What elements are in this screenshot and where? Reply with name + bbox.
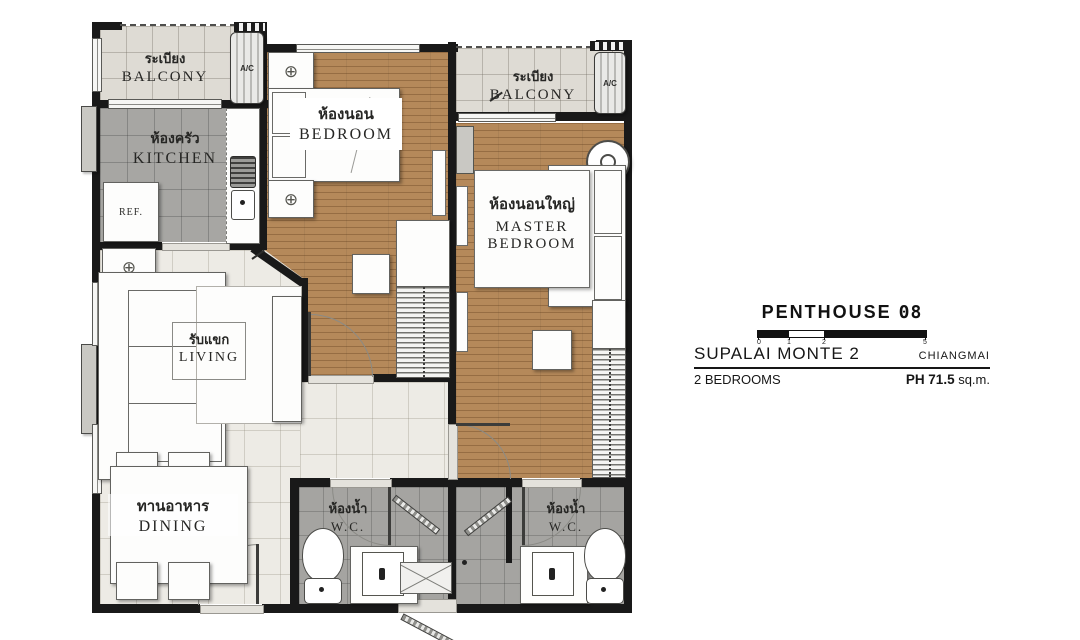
wc-left-faucet bbox=[379, 568, 385, 580]
wc-left-toilet-button bbox=[319, 587, 324, 592]
entrance-door-leaf bbox=[400, 613, 454, 640]
project-city: CHIANGMAI bbox=[919, 350, 990, 362]
bedrooms-count: 2 BEDROOMS bbox=[694, 372, 781, 387]
ceiling-lamp-icon: ⊕ bbox=[284, 63, 298, 80]
wall-south-1 bbox=[92, 604, 200, 613]
pilaster-2 bbox=[81, 344, 97, 434]
ac-unit-right: A/C bbox=[594, 52, 626, 114]
wc-right-toilet-button bbox=[601, 587, 606, 592]
wc-right-toilet-bowl bbox=[584, 528, 626, 582]
refrigerator-label: REF. bbox=[119, 207, 143, 218]
bedroom-wardrobe bbox=[396, 286, 450, 378]
master-stool bbox=[532, 330, 572, 370]
wc-right-faucet bbox=[549, 568, 555, 580]
wall-balcony2-west bbox=[448, 42, 456, 118]
scale-tick-1: 1 bbox=[787, 339, 791, 346]
wc-right-door-leaf bbox=[522, 487, 525, 545]
unit-area-value: 71.5 bbox=[928, 372, 954, 387]
bedroom-tv-panel bbox=[432, 150, 446, 216]
corridor-floor bbox=[300, 382, 448, 478]
pilaster-1 bbox=[81, 106, 97, 172]
scale-bar: 0 1 2 5 bbox=[757, 330, 927, 338]
wall-balcony-left-corner bbox=[92, 22, 122, 30]
wall-south-2 bbox=[262, 604, 398, 613]
balcony-right-vent bbox=[590, 41, 624, 51]
master-bed-canopy bbox=[474, 170, 590, 288]
wc-left-door-leaf bbox=[388, 487, 391, 545]
floor-plan-page: A/C A/C REF. ⊕ ⊕ ⊕ bbox=[0, 0, 1080, 640]
kitchen-balcony-window bbox=[108, 99, 222, 109]
balcony-west-window bbox=[92, 38, 102, 92]
service-shaft bbox=[400, 562, 452, 594]
master-builtin-cabinet bbox=[456, 126, 474, 174]
dining-chair-4 bbox=[168, 562, 210, 600]
scale-tick-5: 5 bbox=[923, 339, 927, 346]
kitchen-sink bbox=[231, 190, 255, 220]
master-door-leaf bbox=[456, 423, 510, 426]
kitchen-drainboard bbox=[230, 156, 256, 188]
bedroom-desk bbox=[396, 220, 450, 288]
scale-bar-segment-2 bbox=[824, 331, 926, 337]
wall-dining-wc bbox=[290, 478, 299, 612]
wall-corridor-wc-3 bbox=[580, 478, 632, 487]
living-tv-console bbox=[272, 296, 302, 422]
refrigerator: REF. bbox=[103, 182, 159, 242]
scale-tick-2: 2 bbox=[822, 339, 826, 346]
balcony-left-railing bbox=[120, 24, 236, 26]
scale-tick-0: 0 bbox=[757, 339, 761, 346]
master-tv-panel-1 bbox=[456, 186, 468, 246]
info-panel: PENTHOUSE 08 0 1 2 5 SUPALAI MONTE 2 CHI… bbox=[694, 302, 990, 387]
dining-chair-3 bbox=[116, 562, 158, 600]
unit-area-label: PH bbox=[906, 372, 925, 387]
ac-unit-right-label: A/C bbox=[603, 79, 617, 88]
master-wardrobe bbox=[592, 348, 626, 478]
dining-door-leaf bbox=[256, 544, 259, 604]
wc-right-shower-knob bbox=[462, 560, 467, 565]
master-pillow-1 bbox=[594, 170, 622, 234]
unit-area: PH 71.5 sq.m. bbox=[906, 372, 990, 387]
project-name: SUPALAI MONTE 2 bbox=[694, 344, 860, 364]
penthouse-title: PENTHOUSE 08 bbox=[694, 302, 990, 323]
ac-unit-left-label: A/C bbox=[240, 64, 254, 73]
bedroom-pillow-1 bbox=[272, 92, 306, 134]
balcony-right-railing bbox=[456, 46, 592, 48]
panel-divider bbox=[694, 367, 990, 369]
bedroom-window bbox=[296, 44, 420, 53]
kitchen-faucet bbox=[240, 200, 245, 205]
ac-unit-left: A/C bbox=[230, 32, 264, 104]
kitchen-door-threshold bbox=[162, 243, 230, 251]
dining-door-threshold bbox=[200, 605, 264, 614]
scale-bar-segment-1 bbox=[758, 331, 789, 337]
penthouse-title-text: PENTHOUSE bbox=[762, 302, 892, 322]
master-desk bbox=[592, 300, 626, 350]
balcony-left-vent bbox=[234, 22, 266, 32]
bedroom-nightstand-1: ⊕ bbox=[268, 52, 314, 90]
bedroom-nightstand-2: ⊕ bbox=[268, 180, 314, 218]
unit-area-unit: sq.m. bbox=[958, 372, 990, 387]
master-tv-panel-2 bbox=[456, 292, 468, 352]
penthouse-unit-number: 08 bbox=[899, 302, 923, 323]
bedroom-stool bbox=[352, 254, 390, 294]
master-pillow-2 bbox=[594, 236, 622, 300]
bedroom-pillow-2 bbox=[272, 136, 306, 178]
master-balcony-window bbox=[458, 113, 556, 122]
bedroom-door-leaf bbox=[308, 312, 311, 376]
wall-south-3 bbox=[455, 604, 632, 613]
wc-left-toilet-bowl bbox=[302, 528, 344, 582]
ceiling-lamp-icon: ⊕ bbox=[284, 191, 298, 208]
